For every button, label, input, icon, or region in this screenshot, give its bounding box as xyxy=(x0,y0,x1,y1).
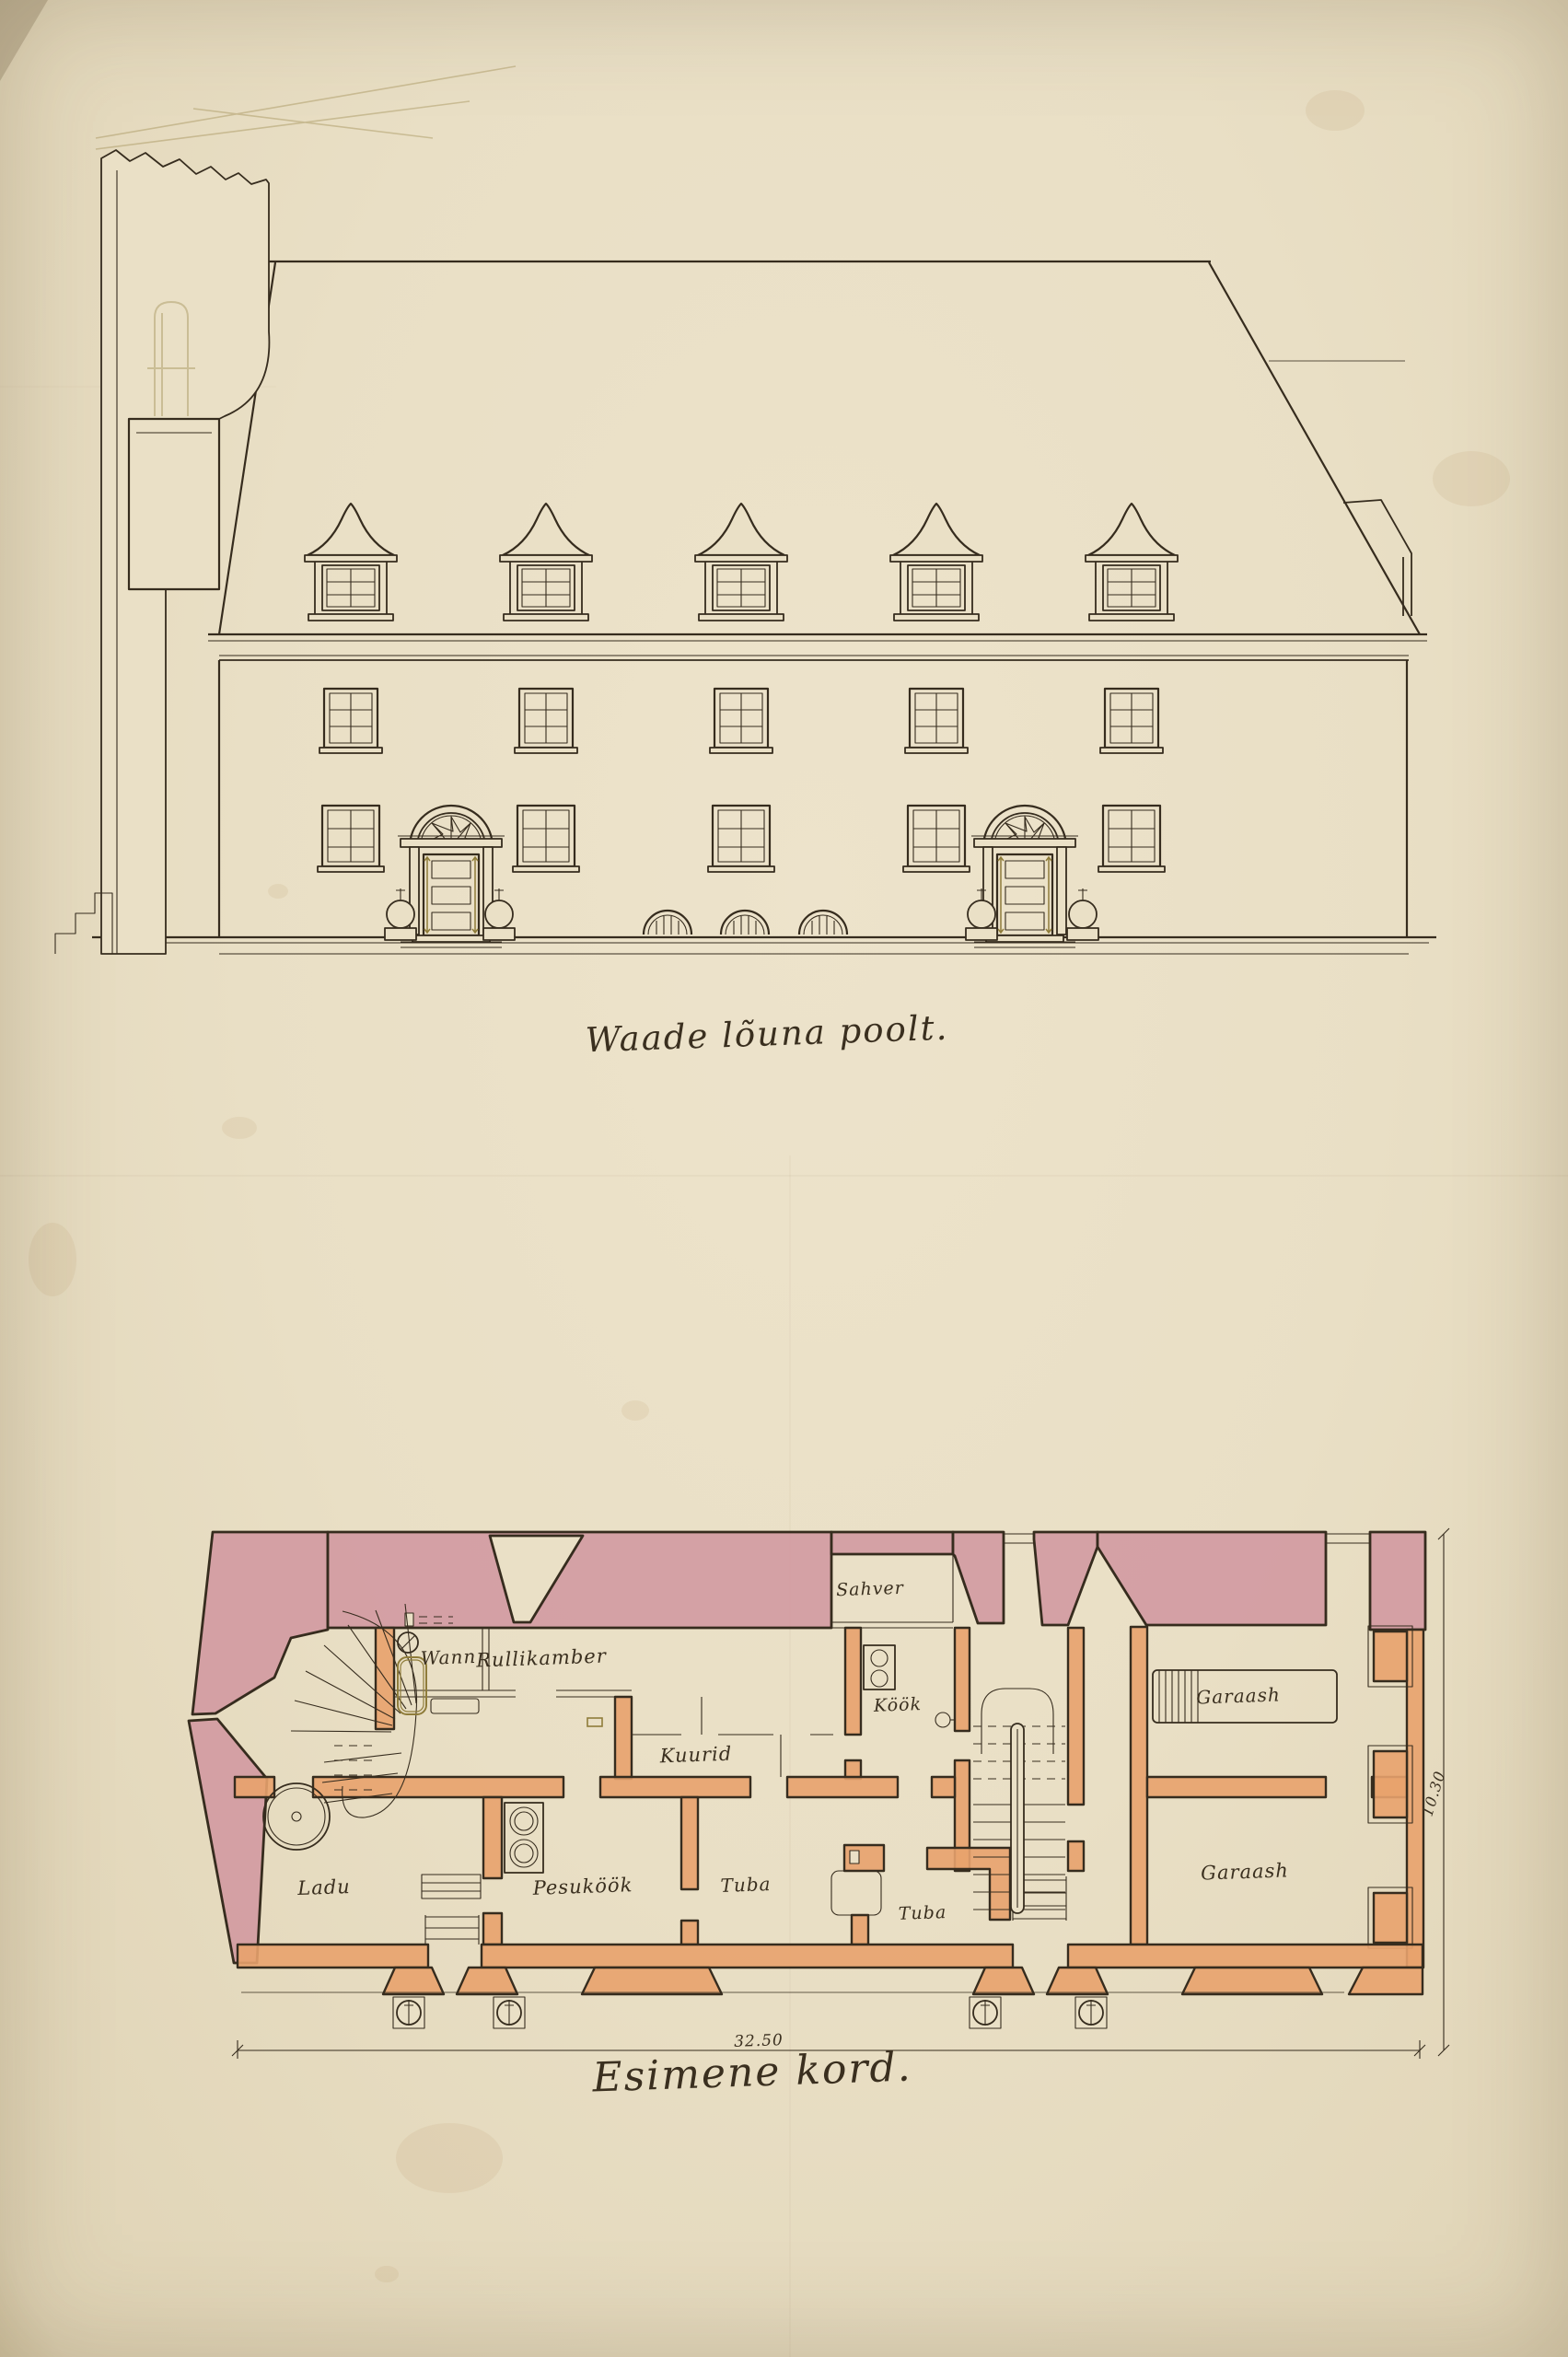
fixtures xyxy=(263,1632,1337,1915)
basement-windows xyxy=(644,911,847,935)
dormer-window xyxy=(695,504,787,621)
window xyxy=(515,689,577,753)
window xyxy=(1100,689,1163,753)
furniture xyxy=(831,1871,881,1915)
room-label-wann: Wann xyxy=(420,1645,476,1669)
buttress-footing xyxy=(457,1968,517,1994)
buttress-footing-wide xyxy=(1182,1968,1322,1994)
room-label-pesukook: Pesuköök xyxy=(532,1874,633,1899)
boiler xyxy=(263,1783,330,1850)
exterior-south-wall xyxy=(238,1876,1423,2028)
kitchen-stove xyxy=(864,1645,895,1689)
interior-thin-walls xyxy=(394,1613,833,1777)
buttress-footing xyxy=(383,1968,444,1994)
dormer-window xyxy=(305,504,397,621)
basement-window xyxy=(799,911,847,935)
buttress-footing xyxy=(1047,1968,1108,1994)
table xyxy=(422,1875,481,1898)
dormer-window xyxy=(1086,504,1178,621)
bollard-pad xyxy=(494,1997,525,2028)
window xyxy=(708,806,774,872)
bench xyxy=(431,1699,479,1713)
roof xyxy=(219,261,1420,634)
adjacent-building-fragment xyxy=(55,66,516,954)
dormer-window xyxy=(500,504,592,621)
bollard-pad xyxy=(970,1997,1001,2028)
room-label-ladu: Ladu xyxy=(297,1875,351,1899)
sphere-bollard xyxy=(1067,888,1098,940)
facade-walls xyxy=(92,660,1436,954)
dimension-width-label: 32.50 xyxy=(734,2031,784,2051)
room-label-garaash-top: Garaash xyxy=(1196,1683,1281,1708)
room-label-tuba-2: Tuba xyxy=(898,1902,947,1924)
second-floor-windows xyxy=(319,689,1163,753)
building-elevation xyxy=(55,66,1436,954)
dormer-window xyxy=(890,504,982,621)
old-masonry-walls xyxy=(189,1532,1425,1963)
architectural-drawing-sheet: Waade lõuna poolt. Esimene kord. Wann Ru… xyxy=(0,0,1568,2357)
window xyxy=(903,806,970,872)
room-label-kuurid: Kuurid xyxy=(659,1743,732,1768)
cornice xyxy=(208,634,1427,660)
sink xyxy=(935,1713,950,1727)
floor-plan xyxy=(189,1528,1449,2059)
buttress-footing xyxy=(973,1968,1034,1994)
window xyxy=(905,689,968,753)
basement-window xyxy=(644,911,691,935)
entrance-door xyxy=(398,806,505,947)
basement-window xyxy=(721,911,769,935)
dormers xyxy=(305,504,1178,621)
room-label-rullikamber: Rullikamber xyxy=(476,1645,607,1672)
drawing-canvas xyxy=(0,0,1568,2357)
window xyxy=(710,689,772,753)
window xyxy=(318,806,384,872)
bollard-pad xyxy=(1075,1997,1107,2028)
central-staircase xyxy=(973,1689,1065,1913)
window xyxy=(1098,806,1165,872)
buttress-footing-wide xyxy=(582,1968,722,1994)
room-label-sahver: Sahver xyxy=(836,1578,904,1601)
window xyxy=(319,689,382,753)
window xyxy=(513,806,579,872)
room-label-tuba-1: Tuba xyxy=(720,1873,772,1897)
room-label-garaash-bottom: Garaash xyxy=(1201,1859,1289,1884)
room-label-kook: Köök xyxy=(874,1694,923,1716)
bollard-pad xyxy=(393,1997,424,2028)
